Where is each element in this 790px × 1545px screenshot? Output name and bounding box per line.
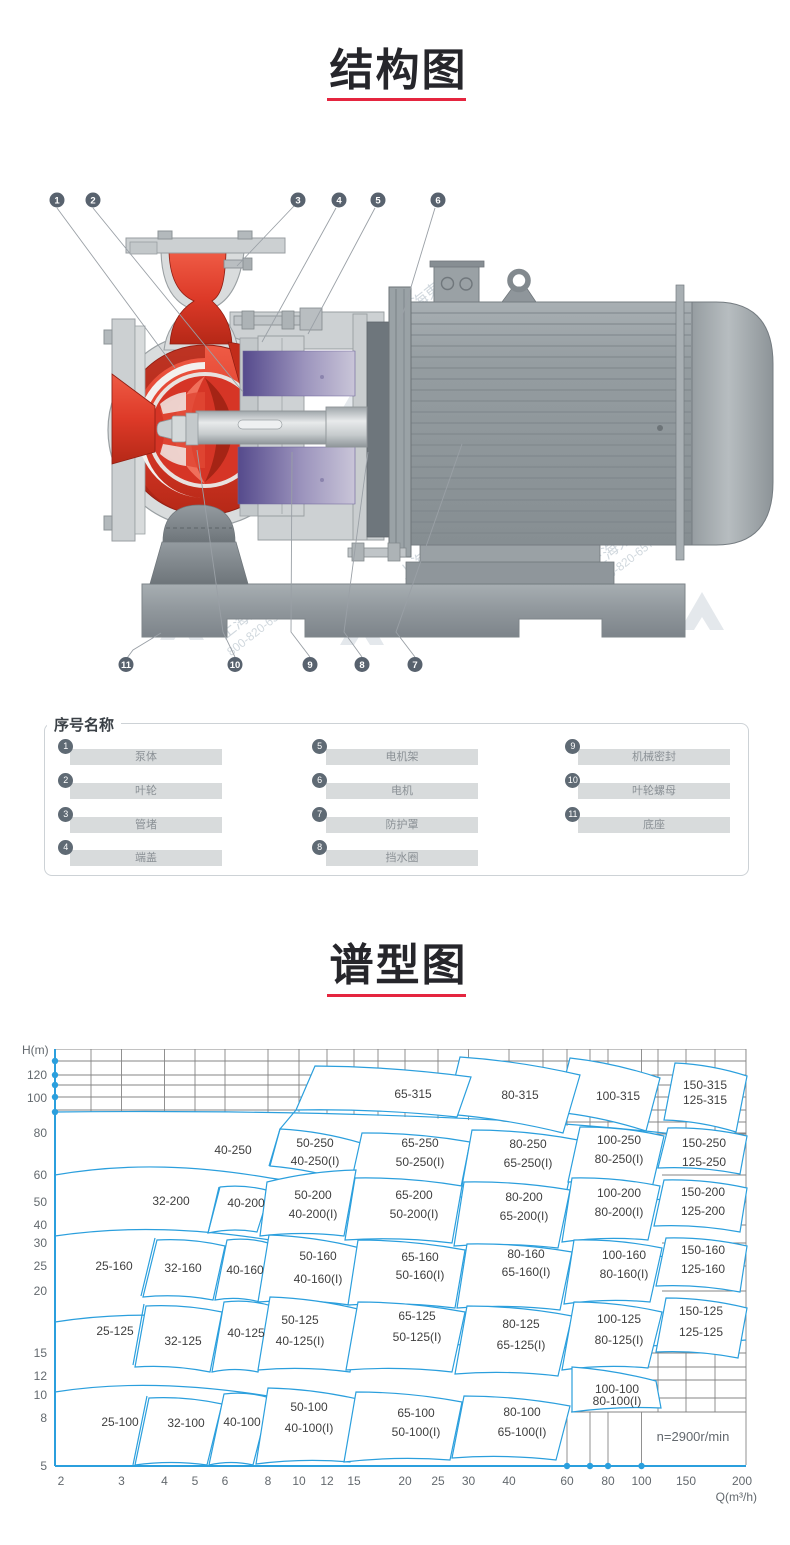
svg-text:100: 100 (631, 1474, 651, 1488)
svg-text:40-125(I): 40-125(I) (276, 1334, 325, 1348)
svg-text:50-160: 50-160 (299, 1249, 337, 1263)
svg-text:32-100: 32-100 (167, 1416, 205, 1430)
svg-text:2: 2 (58, 1474, 65, 1488)
svg-text:100-200: 100-200 (597, 1186, 641, 1200)
svg-text:50-125(I): 50-125(I) (393, 1330, 442, 1344)
svg-text:50-125: 50-125 (281, 1313, 319, 1327)
svg-text:30: 30 (462, 1474, 476, 1488)
svg-text:40-250(I): 40-250(I) (291, 1154, 340, 1168)
svg-text:32-160: 32-160 (164, 1261, 202, 1275)
svg-text:12: 12 (320, 1474, 334, 1488)
svg-text:150-200: 150-200 (681, 1185, 725, 1199)
svg-text:50-200: 50-200 (294, 1188, 332, 1202)
svg-text:100-160: 100-160 (602, 1248, 646, 1262)
svg-text:40-100(I): 40-100(I) (285, 1421, 334, 1435)
svg-text:8: 8 (265, 1474, 272, 1488)
svg-text:9: 9 (307, 660, 312, 671)
svg-text:25-160: 25-160 (95, 1259, 133, 1273)
svg-text:150-250: 150-250 (682, 1136, 726, 1150)
svg-text:60: 60 (34, 1168, 48, 1182)
svg-text:125-160: 125-160 (681, 1262, 725, 1276)
svg-text:100-125: 100-125 (597, 1312, 641, 1326)
svg-text:40-200: 40-200 (227, 1196, 265, 1210)
svg-text:80: 80 (601, 1474, 615, 1488)
svg-text:6: 6 (222, 1474, 229, 1488)
svg-text:65-160: 65-160 (401, 1250, 439, 1264)
svg-text:30: 30 (34, 1236, 48, 1250)
svg-text:150: 150 (676, 1474, 696, 1488)
svg-text:80-125: 80-125 (502, 1317, 540, 1331)
svg-text:80-200: 80-200 (505, 1190, 543, 1204)
svg-text:50-200(I): 50-200(I) (390, 1207, 439, 1221)
svg-text:65-160(I): 65-160(I) (502, 1265, 551, 1279)
svg-text:80-160: 80-160 (507, 1247, 545, 1261)
svg-text:40-100: 40-100 (223, 1415, 261, 1429)
svg-text:80-315: 80-315 (501, 1088, 539, 1102)
svg-text:100-315: 100-315 (596, 1089, 640, 1103)
svg-text:80-250(I): 80-250(I) (595, 1152, 644, 1166)
svg-text:125-125: 125-125 (679, 1325, 723, 1339)
svg-text:20: 20 (398, 1474, 412, 1488)
svg-text:65-200: 65-200 (395, 1188, 433, 1202)
svg-text:80-250: 80-250 (509, 1137, 547, 1151)
svg-text:10: 10 (34, 1388, 48, 1402)
svg-text:80: 80 (34, 1126, 48, 1140)
svg-text:32-125: 32-125 (164, 1334, 202, 1348)
svg-text:120: 120 (27, 1068, 47, 1082)
svg-text:8: 8 (359, 660, 364, 671)
svg-text:65-250: 65-250 (401, 1136, 439, 1150)
svg-text:25-125: 25-125 (96, 1324, 134, 1338)
svg-text:125-315: 125-315 (683, 1093, 727, 1107)
svg-text:40-250: 40-250 (214, 1143, 252, 1157)
svg-text:H(m): H(m) (22, 1043, 49, 1057)
svg-text:65-200(I): 65-200(I) (500, 1209, 549, 1223)
svg-text:8: 8 (40, 1411, 47, 1425)
svg-text:40: 40 (34, 1218, 48, 1232)
svg-text:50-100(I): 50-100(I) (392, 1425, 441, 1439)
svg-text:12: 12 (34, 1369, 48, 1383)
svg-text:65-100: 65-100 (397, 1406, 435, 1420)
svg-text:100: 100 (27, 1091, 47, 1105)
svg-text:50-250: 50-250 (296, 1136, 334, 1150)
svg-text:4: 4 (161, 1474, 168, 1488)
svg-text:5: 5 (375, 196, 381, 207)
svg-text:60: 60 (560, 1474, 574, 1488)
svg-text:80-100(I): 80-100(I) (593, 1394, 642, 1408)
svg-text:200: 200 (732, 1474, 752, 1488)
svg-text:150-160: 150-160 (681, 1243, 725, 1257)
svg-text:10: 10 (292, 1474, 306, 1488)
svg-text:65-250(I): 65-250(I) (504, 1156, 553, 1170)
svg-text:10: 10 (230, 660, 241, 671)
svg-text:50-100: 50-100 (290, 1400, 328, 1414)
svg-text:2: 2 (90, 196, 95, 207)
svg-text:40-200(I): 40-200(I) (289, 1207, 338, 1221)
svg-text:Q(m³/h): Q(m³/h) (716, 1490, 757, 1504)
svg-text:100-250: 100-250 (597, 1133, 641, 1147)
svg-text:3: 3 (118, 1474, 125, 1488)
svg-text:1: 1 (54, 196, 60, 207)
svg-text:80-125(I): 80-125(I) (595, 1333, 644, 1347)
svg-text:15: 15 (347, 1474, 361, 1488)
svg-text:40-160: 40-160 (226, 1263, 264, 1277)
svg-text:40: 40 (502, 1474, 516, 1488)
svg-text:25-100: 25-100 (101, 1415, 139, 1429)
svg-text:150-315: 150-315 (683, 1078, 727, 1092)
svg-text:6: 6 (435, 196, 440, 207)
svg-text:65-100(I): 65-100(I) (498, 1425, 547, 1439)
svg-text:7: 7 (412, 660, 417, 671)
svg-text:40-125: 40-125 (227, 1326, 265, 1340)
svg-text:65-125(I): 65-125(I) (497, 1338, 546, 1352)
svg-text:20: 20 (34, 1284, 48, 1298)
svg-text:65-315: 65-315 (394, 1087, 432, 1101)
svg-text:5: 5 (40, 1459, 47, 1473)
svg-text:25: 25 (34, 1259, 48, 1273)
svg-text:3: 3 (295, 196, 300, 207)
svg-text:80-200(I): 80-200(I) (595, 1205, 644, 1219)
svg-text:125-250: 125-250 (682, 1155, 726, 1169)
svg-text:25: 25 (431, 1474, 445, 1488)
svg-text:150-125: 150-125 (679, 1304, 723, 1318)
svg-text:15: 15 (34, 1346, 48, 1360)
svg-text:4: 4 (336, 196, 342, 207)
svg-text:65-125: 65-125 (398, 1309, 436, 1323)
svg-text:50-250(I): 50-250(I) (396, 1155, 445, 1169)
svg-text:125-200: 125-200 (681, 1204, 725, 1218)
svg-text:11: 11 (121, 660, 132, 671)
svg-text:50-160(I): 50-160(I) (396, 1268, 445, 1282)
svg-text:80-100: 80-100 (503, 1405, 541, 1419)
svg-text:n=2900r/min: n=2900r/min (657, 1429, 730, 1444)
svg-text:5: 5 (192, 1474, 199, 1488)
svg-text:32-200: 32-200 (152, 1194, 190, 1208)
svg-text:80-160(I): 80-160(I) (600, 1267, 649, 1281)
svg-text:40-160(I): 40-160(I) (294, 1272, 343, 1286)
svg-text:50: 50 (34, 1195, 48, 1209)
